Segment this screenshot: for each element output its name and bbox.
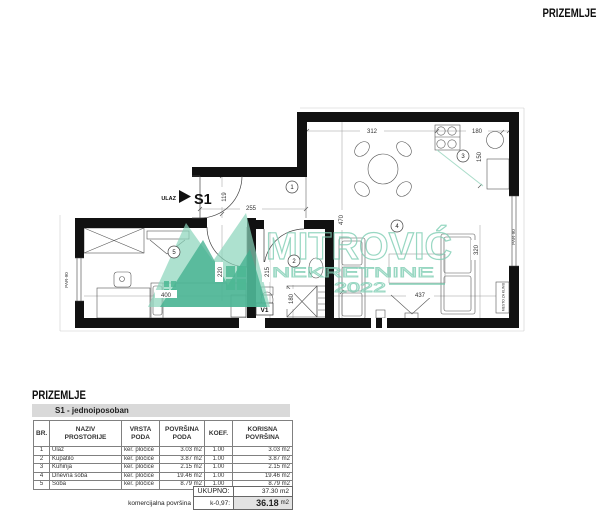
cell-br: 1 [34, 447, 50, 456]
dim-437: 437 [415, 293, 426, 299]
cell-br: 2 [34, 455, 50, 464]
dim-220: 220 [218, 266, 224, 277]
cell-vrsta: ker. pločice [122, 481, 160, 490]
cell-korisna: 19.46 m2 [233, 472, 293, 481]
dim-215: 215 [265, 266, 271, 277]
ac-unit-label: MESTO ZA KLIMU [502, 282, 506, 311]
dining-table [368, 154, 398, 184]
col-korisna: KORISNA POVRŠINA [233, 421, 293, 447]
window-label-left: PAR-90 [64, 272, 69, 288]
desk-chair [114, 272, 131, 287]
dim-312: 312 [367, 129, 378, 135]
dim-255: 255 [246, 206, 257, 212]
cell-koef: 1.00 [205, 464, 233, 473]
cell-koef: 1.00 [205, 447, 233, 456]
dim-180-top: 180 [472, 129, 483, 135]
dim-150: 150 [477, 151, 483, 162]
unit-subtitle: S1 - jednoiposoban [32, 404, 290, 417]
cell-vrsta: ker. pločice [122, 447, 160, 456]
table-header-row: BR. NAZIV PROSTORIJE VRSTA PODA POVRŠINA… [34, 421, 293, 447]
kitchen-sink [487, 132, 504, 149]
col-br: BR. [34, 421, 50, 447]
cell-koef: 1.00 [205, 455, 233, 464]
washer [317, 286, 326, 317]
table-row: 2 Kupatilo ker. pločice 3.87 m2 1.00 3.8… [34, 455, 293, 464]
dim-400: 400 [161, 293, 172, 299]
vent-label: V1 [261, 307, 269, 314]
area-table: BR. NAZIV PROSTORIJE VRSTA PODA POVRŠINA… [33, 420, 293, 490]
desk [97, 288, 150, 318]
cell-korisna: 2.15 m2 [233, 464, 293, 473]
ulaz-label: ULAZ [161, 196, 176, 202]
floor-title-bottom: PRIZEMLJE [32, 388, 86, 402]
cell-korisna: 3.03 m2 [233, 447, 293, 456]
chair [352, 139, 373, 160]
cell-koef: 1.00 [205, 472, 233, 481]
dim-119: 119 [222, 192, 228, 202]
col-vrsta: VRSTA PODA [122, 421, 160, 447]
walls-layer [75, 112, 519, 328]
cell-br: 5 [34, 481, 50, 490]
unit-subtitle-bar: S1 - jednoiposoban [32, 404, 290, 417]
cell-naziv: Soba [50, 481, 122, 490]
table-row: 3 Kuhinja ker. pločice 2.15 m2 1.00 2.15… [34, 464, 293, 473]
dimension-labels: 312 180 255 400 437 150 119 470 220 215 … [64, 126, 516, 309]
cell-vrsta: ker. pločice [122, 455, 160, 464]
cell-povrsina: 19.46 m2 [160, 472, 205, 481]
cell-vrsta: ker. pločice [122, 464, 160, 473]
cell-br: 4 [34, 472, 50, 481]
kitchen-counter [487, 159, 509, 189]
entrance-label: ULAZ S1 [161, 190, 211, 208]
chair [394, 179, 415, 200]
cell-povrsina: 2.15 m2 [160, 464, 205, 473]
col-povrsina: POVRŠINA PODA [160, 421, 205, 447]
cell-povrsina: 3.87 m2 [160, 455, 205, 464]
commercial-area-number: 36.18 [256, 498, 279, 508]
col-koef: KOEF. [205, 421, 233, 447]
stove [435, 125, 460, 150]
dim-320: 320 [474, 244, 480, 255]
cell-naziv: Ulaz [50, 447, 122, 456]
commercial-area-unit: m2 [281, 500, 289, 506]
dim-470: 470 [339, 214, 345, 225]
chair [394, 139, 415, 160]
commercial-area-value: 36.18 m2 [233, 496, 293, 510]
table-row: 1 Ulaz ker. pločice 3.03 m2 1.00 3.03 m2 [34, 447, 293, 456]
commercial-koef-label: k-0,97: [193, 496, 234, 510]
window-label-right: PAR-90 [511, 229, 516, 245]
cell-naziv: Dnevna soba [50, 472, 122, 481]
col-naziv: NAZIV PROSTORIJE [50, 421, 122, 447]
dim-180-bath: 180 [289, 293, 295, 304]
cell-vrsta: ker. pločice [122, 472, 160, 481]
cell-br: 3 [34, 464, 50, 473]
floor-plan: V1 MESTO ZA KLIMU MITROVIĆ NEKRETNINE 20… [0, 0, 600, 400]
chair [352, 179, 373, 200]
watermark-line3: 2022 [334, 279, 386, 295]
cell-naziv: Kupatilo [50, 455, 122, 464]
cell-povrsina: 3.03 m2 [160, 447, 205, 456]
cell-korisna: 3.87 m2 [233, 455, 293, 464]
unit-code-label: S1 [194, 192, 212, 208]
commercial-area-label: komercijalna površina [90, 497, 191, 510]
entrance-arrow-icon [179, 190, 191, 203]
table-row: 4 Dnevna soba ker. pločice 19.46 m2 1.00… [34, 472, 293, 481]
cell-naziv: Kuhinja [50, 464, 122, 473]
